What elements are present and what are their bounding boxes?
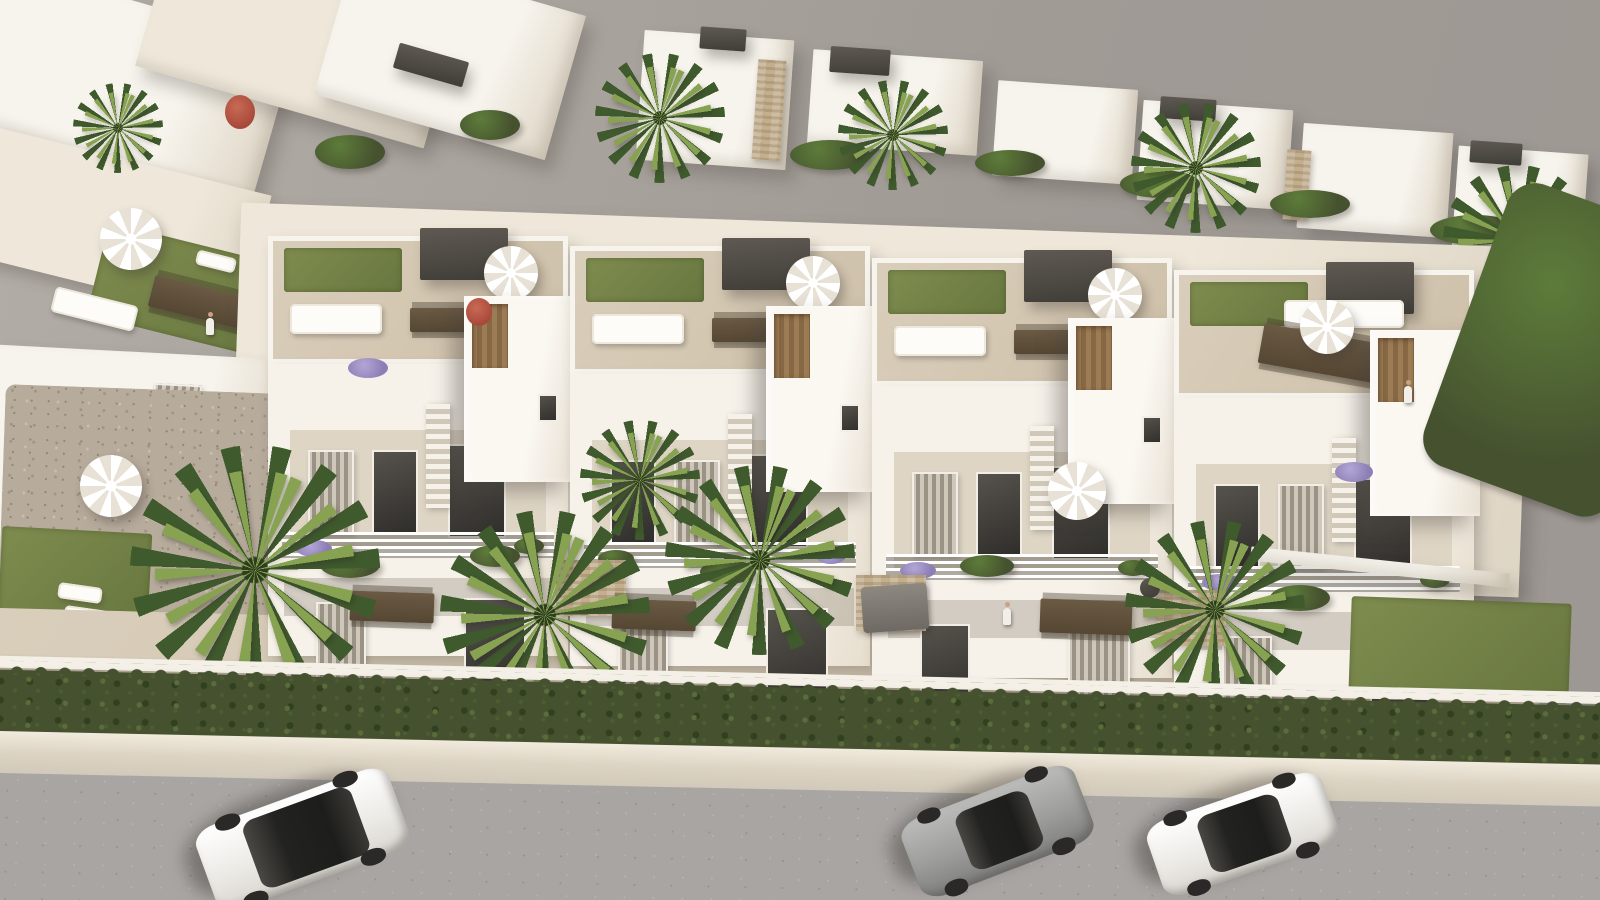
person-figure (206, 318, 214, 335)
shrub (975, 150, 1045, 176)
palm-tree (595, 53, 725, 183)
shrub (315, 135, 385, 169)
roof-vent-box (1469, 140, 1522, 166)
rooftop-sofa (290, 304, 382, 334)
white-parasol (1088, 268, 1142, 322)
white-parasol (1300, 300, 1354, 354)
exterior-stairs (1332, 438, 1356, 542)
rooftop-lawn (888, 270, 1006, 314)
window-glass (372, 450, 418, 534)
person-figure (1003, 608, 1011, 625)
palm-tree (1125, 520, 1305, 700)
villa (1297, 123, 1454, 238)
shrub (960, 555, 1014, 577)
flowering-tree (225, 95, 255, 129)
small-window (538, 394, 558, 422)
lavender-planter (1335, 462, 1373, 482)
roof-vent-box (829, 46, 891, 76)
render-canvas (0, 0, 1600, 900)
rooftop-lawn (284, 248, 402, 292)
rooftop-sofa (894, 326, 986, 356)
exterior-stairs (426, 404, 450, 508)
garden-dining-table (1039, 598, 1132, 635)
lavender-planter (348, 358, 388, 378)
small-window (1142, 416, 1162, 444)
white-parasol (786, 256, 840, 310)
palm-tree (1131, 103, 1261, 233)
rooftop-sofa (592, 314, 684, 344)
palm-tree (130, 445, 380, 695)
palm-tree (838, 80, 948, 190)
white-parasol (1048, 462, 1106, 520)
window-glass (976, 472, 1022, 556)
white-parasol (100, 208, 162, 270)
daybed (860, 583, 929, 633)
white-parasol (484, 246, 538, 300)
shrub (460, 110, 520, 140)
stair-tower (766, 306, 876, 492)
small-window (840, 404, 860, 432)
person-figure (1404, 386, 1412, 403)
rooftop-lawn (586, 258, 704, 302)
shrub (1270, 190, 1350, 218)
palm-tree (73, 83, 163, 173)
palm-tree (665, 465, 855, 655)
window-shutters (912, 472, 958, 556)
white-parasol (80, 455, 142, 517)
wood-cladding (774, 314, 810, 378)
bougainvillea (466, 298, 492, 326)
roof-vent-box (699, 26, 746, 51)
wood-cladding (1076, 326, 1112, 390)
